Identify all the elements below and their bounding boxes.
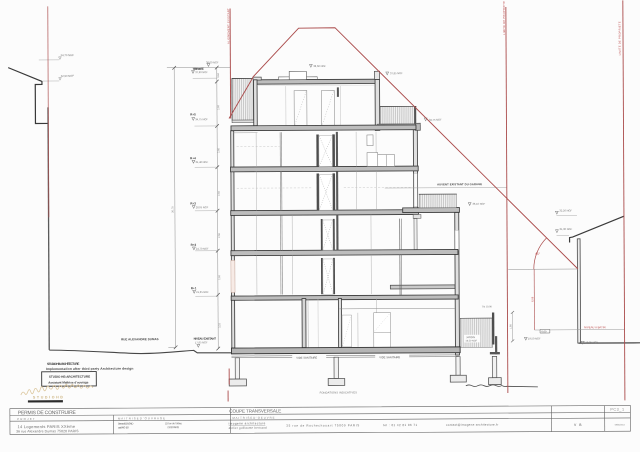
svg-text:NIVEAU EXISTANT: NIVEAU EXISTANT xyxy=(194,337,217,341)
svg-text:LIMITE DE PROPRIETE: LIMITE DE PROPRIETE xyxy=(502,1,506,35)
svg-text:2,80: 2,80 xyxy=(217,105,220,110)
svg-text:21,35 NGF: 21,35 NGF xyxy=(196,290,209,294)
svg-text:28,05 NGF: 28,05 NGF xyxy=(196,205,209,209)
svg-text:34,75 NGF: 34,75 NGF xyxy=(195,117,208,121)
svg-text:2,66: 2,66 xyxy=(218,233,221,238)
svg-text:35 rue de Rochechouart 75009 P: 35 rue de Rochechouart 75009 PARIS xyxy=(286,423,359,427)
svg-text:34,70 NGF: 34,70 NGF xyxy=(61,53,75,57)
svg-text:3,20: 3,20 xyxy=(218,323,221,328)
svg-text:1,88: 1,88 xyxy=(509,324,512,329)
svg-text:tel : 01 42 81 06 71: tel : 01 42 81 06 71 xyxy=(383,423,417,427)
svg-text:75013 PARIS: 75013 PARIS xyxy=(167,425,179,429)
svg-text:2,80: 2,80 xyxy=(218,191,221,196)
svg-text:NIVEAU A BATIR: NIVEAU A BATIR xyxy=(584,325,606,329)
svg-text:VIDE SANITAIRE: VIDE SANITAIRE xyxy=(379,355,400,359)
svg-text:M A I T R I S E D ' O E U V: M A I T R I S E D ' O E U V R E xyxy=(232,416,274,420)
svg-text:2,80: 2,80 xyxy=(218,275,221,280)
svg-text:ALIGNEMENT EXISTANT: ALIGNEMENT EXISTANT xyxy=(226,8,230,44)
svg-text:18,50 NGF: 18,50 NGF xyxy=(465,339,477,342)
svg-text:19,05 NGF: 19,05 NGF xyxy=(585,340,598,344)
svg-text:38,60 NGF: 38,60 NGF xyxy=(313,64,326,68)
svg-text:32,90 NGF: 32,90 NGF xyxy=(61,74,75,78)
svg-text:R+4: R+4 xyxy=(190,156,196,160)
svg-text:PERMIS DE CONSTRUIRE: PERMIS DE CONSTRUIRE xyxy=(18,410,77,416)
svg-text:36 rue Alexandre Dumas 75020: 36 rue Alexandre Dumas 75020 PARIS xyxy=(16,429,79,433)
svg-text:AUVENT EXISTANT DU GARAGE: AUVENT EXISTANT DU GARAGE xyxy=(437,182,482,186)
svg-text:R+5: R+5 xyxy=(190,112,196,116)
svg-text:36,10 NGF: 36,10 NGF xyxy=(472,202,485,206)
svg-text:COUPE TRANSVERSALE: COUPE TRANSVERSALE xyxy=(229,408,281,413)
svg-text:17,85 NGF: 17,85 NGF xyxy=(195,340,208,344)
svg-text:R+2: R+2 xyxy=(191,243,197,247)
svg-text:34,75 NGF: 34,75 NGF xyxy=(429,118,442,122)
svg-text:LIMITE DE PROPRIETE: LIMITE DE PROPRIETE xyxy=(618,21,622,55)
svg-text:20,70: 20,70 xyxy=(170,206,174,213)
svg-text:atelier guillaume bertrand: atelier guillaume bertrand xyxy=(229,426,267,430)
svg-text:Implementation after third par: Implementation after third party Archite… xyxy=(46,367,133,371)
svg-text:M A I T R I S E D ' O U V R: M A I T R I S E D ' O U V R A G E xyxy=(118,416,165,420)
svg-text:09/06/2013: 09/06/2013 xyxy=(615,425,626,427)
svg-text:6,08: 6,08 xyxy=(530,296,534,302)
svg-text:Bernard BENSAID: Bernard BENSAID xyxy=(118,421,133,425)
svg-text:0,60: 0,60 xyxy=(542,330,547,333)
svg-text:P R O J E T: P R O J E T xyxy=(17,417,35,421)
svg-text:axel VACHER: axel VACHER xyxy=(118,425,129,429)
svg-text:R+3: R+3 xyxy=(190,201,196,205)
svg-text:24,70 NGF: 24,70 NGF xyxy=(196,247,209,251)
svg-text:116 av de Tolbiac: 116 av de Tolbiac xyxy=(165,421,183,425)
svg-text:PC3_1: PC3_1 xyxy=(610,408,624,412)
svg-text:0,60: 0,60 xyxy=(217,73,220,78)
svg-text:VIDE SANITAIRE: VIDE SANITAIRE xyxy=(296,356,317,360)
svg-text:contact@imogene-architecture.f: contact@imogene-architecture.fr xyxy=(446,423,498,427)
svg-text:37,85 NGF: 37,85 NGF xyxy=(390,71,403,75)
svg-text:38,60 NGF: 38,60 NGF xyxy=(206,60,219,64)
svg-text:R+1: R+1 xyxy=(191,286,197,290)
svg-text:Assistant Maîtrise d'ouvrage: Assistant Maîtrise d'ouvrage xyxy=(48,380,89,384)
svg-text:STUDIO HB ARCHITECTURE: STUDIO HB ARCHITECTURE xyxy=(47,362,79,366)
svg-text:31,40 NGF: 31,40 NGF xyxy=(195,160,208,164)
svg-text:TN 19,06: TN 19,06 xyxy=(482,305,493,308)
svg-text:31,30 NGF: 31,30 NGF xyxy=(560,227,573,231)
svg-text:2,66: 2,66 xyxy=(217,148,220,153)
svg-text:32,20 NGF: 32,20 NGF xyxy=(559,208,572,212)
svg-text:RUE ALEXANDRE DUMAS: RUE ALEXANDRE DUMAS xyxy=(121,337,159,341)
svg-text:19,50 NGF: 19,50 NGF xyxy=(528,336,541,340)
svg-text:45°: 45° xyxy=(535,252,541,256)
svg-text:37,90 NGF: 37,90 NGF xyxy=(195,70,208,74)
svg-text:STUDIO HB ARCHITECTURE: STUDIO HB ARCHITECTURE xyxy=(49,375,90,379)
svg-text:FONDATIONS INDICATIVES: FONDATIONS INDICATIVES xyxy=(320,390,358,394)
